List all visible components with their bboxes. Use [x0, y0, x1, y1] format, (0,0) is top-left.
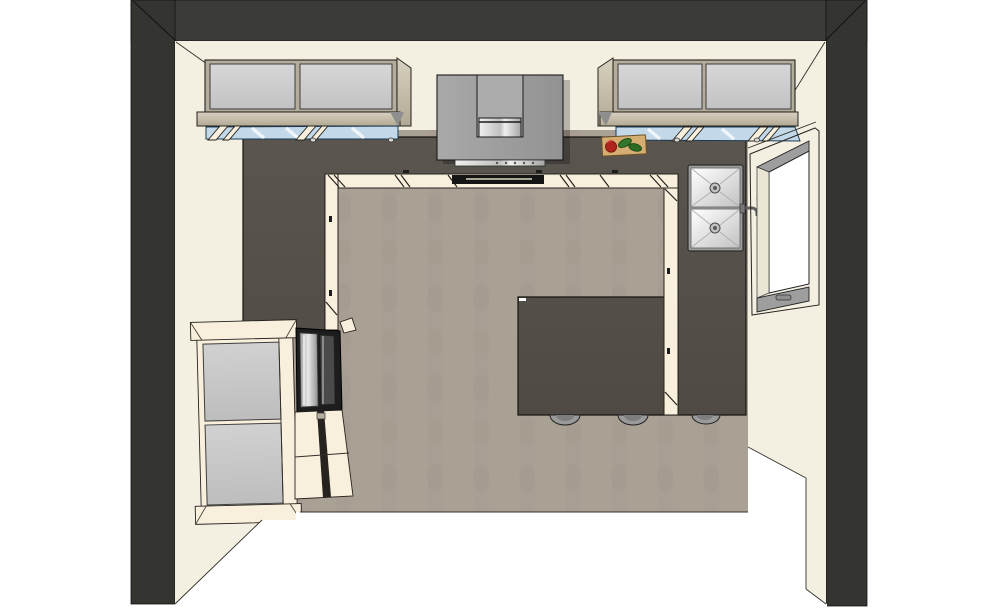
faucet-base — [740, 204, 745, 213]
upper-right-door-1 — [618, 64, 702, 109]
upper-left-shelf — [197, 112, 400, 126]
cooktop-strip — [455, 160, 545, 166]
wall-right-band — [826, 0, 867, 606]
wall-left-band — [131, 0, 175, 604]
hood-vent — [479, 118, 521, 137]
upper-left-door-2 — [300, 64, 392, 109]
fridge-top-trim — [190, 320, 296, 341]
oven-door-2 — [320, 335, 335, 405]
fridge-panel-1 — [203, 342, 281, 421]
render-stage — [0, 0, 1000, 608]
upper-cabinet-left — [197, 58, 411, 142]
window-jamb — [757, 167, 769, 298]
upper-cabinet-right — [598, 58, 800, 142]
knob-left-1 — [310, 138, 315, 142]
oven-tower-knob — [317, 413, 325, 419]
window-glass — [769, 151, 809, 293]
upper-left-door-1 — [210, 64, 295, 109]
oven-door-1 — [300, 333, 318, 407]
cutting-board — [602, 135, 647, 156]
base-front-right-run — [664, 188, 678, 415]
scene-viewport[interactable] — [0, 0, 1000, 608]
knob-left-2 — [388, 138, 393, 142]
knob-right-2 — [754, 138, 759, 142]
fridge-panel-2 — [205, 423, 283, 505]
wall-top-band — [131, 0, 867, 41]
window-handle — [776, 295, 791, 300]
drain-1-hole — [713, 186, 717, 190]
counter-corner-highlight — [519, 298, 526, 301]
oven — [452, 175, 544, 184]
sink — [688, 165, 743, 251]
cooktop — [455, 160, 545, 166]
upper-right-door-2 — [706, 64, 791, 109]
base-front-left-run — [325, 174, 338, 330]
upper-right-shelf — [600, 112, 798, 126]
knob-right-1 — [674, 138, 679, 142]
range-hood — [437, 75, 570, 164]
refrigerator — [190, 320, 301, 525]
drain-2-hole — [713, 226, 717, 230]
